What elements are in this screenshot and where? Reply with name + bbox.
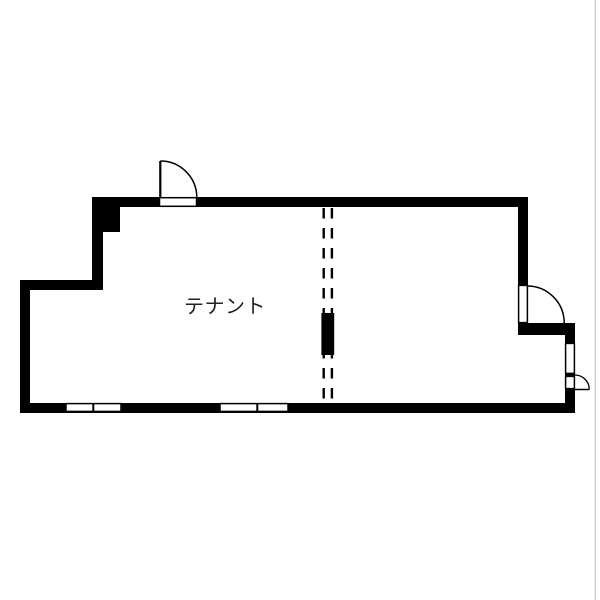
room-label: テナント [184,294,266,318]
right-door-threshold [519,285,528,322]
right-door-arc [527,286,564,323]
right-side-door-arc [575,375,590,390]
right-jog-wall [518,323,575,335]
right-side-window [566,343,575,373]
right-side-door-threshold [566,376,575,388]
floor-plan-page: テナント [0,0,600,600]
partition [321,208,334,403]
partition-post [321,313,334,355]
upper-left-wall [92,197,103,290]
bottom-window-right [220,404,288,412]
right-upper-wall [518,197,528,285]
left-wall [20,280,30,413]
entrance-door-threshold [160,198,197,207]
left-step-wall [20,280,103,290]
floor-plan-drawing: テナント [0,0,600,600]
top-wall [92,197,528,207]
walls [20,197,575,413]
openings [66,198,574,412]
entrance-door-arc [160,161,197,198]
